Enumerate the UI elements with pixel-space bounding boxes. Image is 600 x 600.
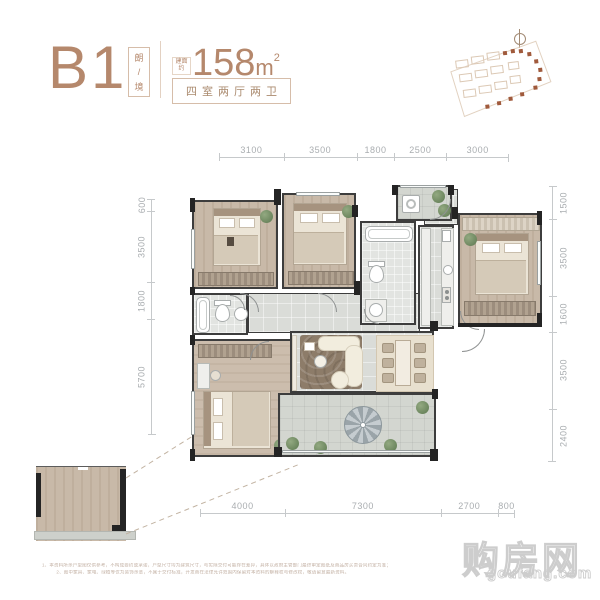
- floorplan-page: B1 朗 / 境 建面 约 158m2 四室两厅两卫: [0, 0, 600, 600]
- fine-print: 1、本资料所示户型图仅供参考，不构成要约或承诺，户型尺寸均为建筑尺寸，与实际交付…: [42, 563, 558, 577]
- fine-print-line1: 1、本资料所示户型图仅供参考，不构成要约或承诺，户型尺寸均为建筑尺寸，与实际交付…: [42, 563, 506, 569]
- storage-connector-lines: [0, 0, 600, 600]
- fine-print-line2: 2、图中家具、家电、绿植等仅为装饰示意，不属于交付标准，开发商在法律允许范围内保…: [42, 570, 506, 576]
